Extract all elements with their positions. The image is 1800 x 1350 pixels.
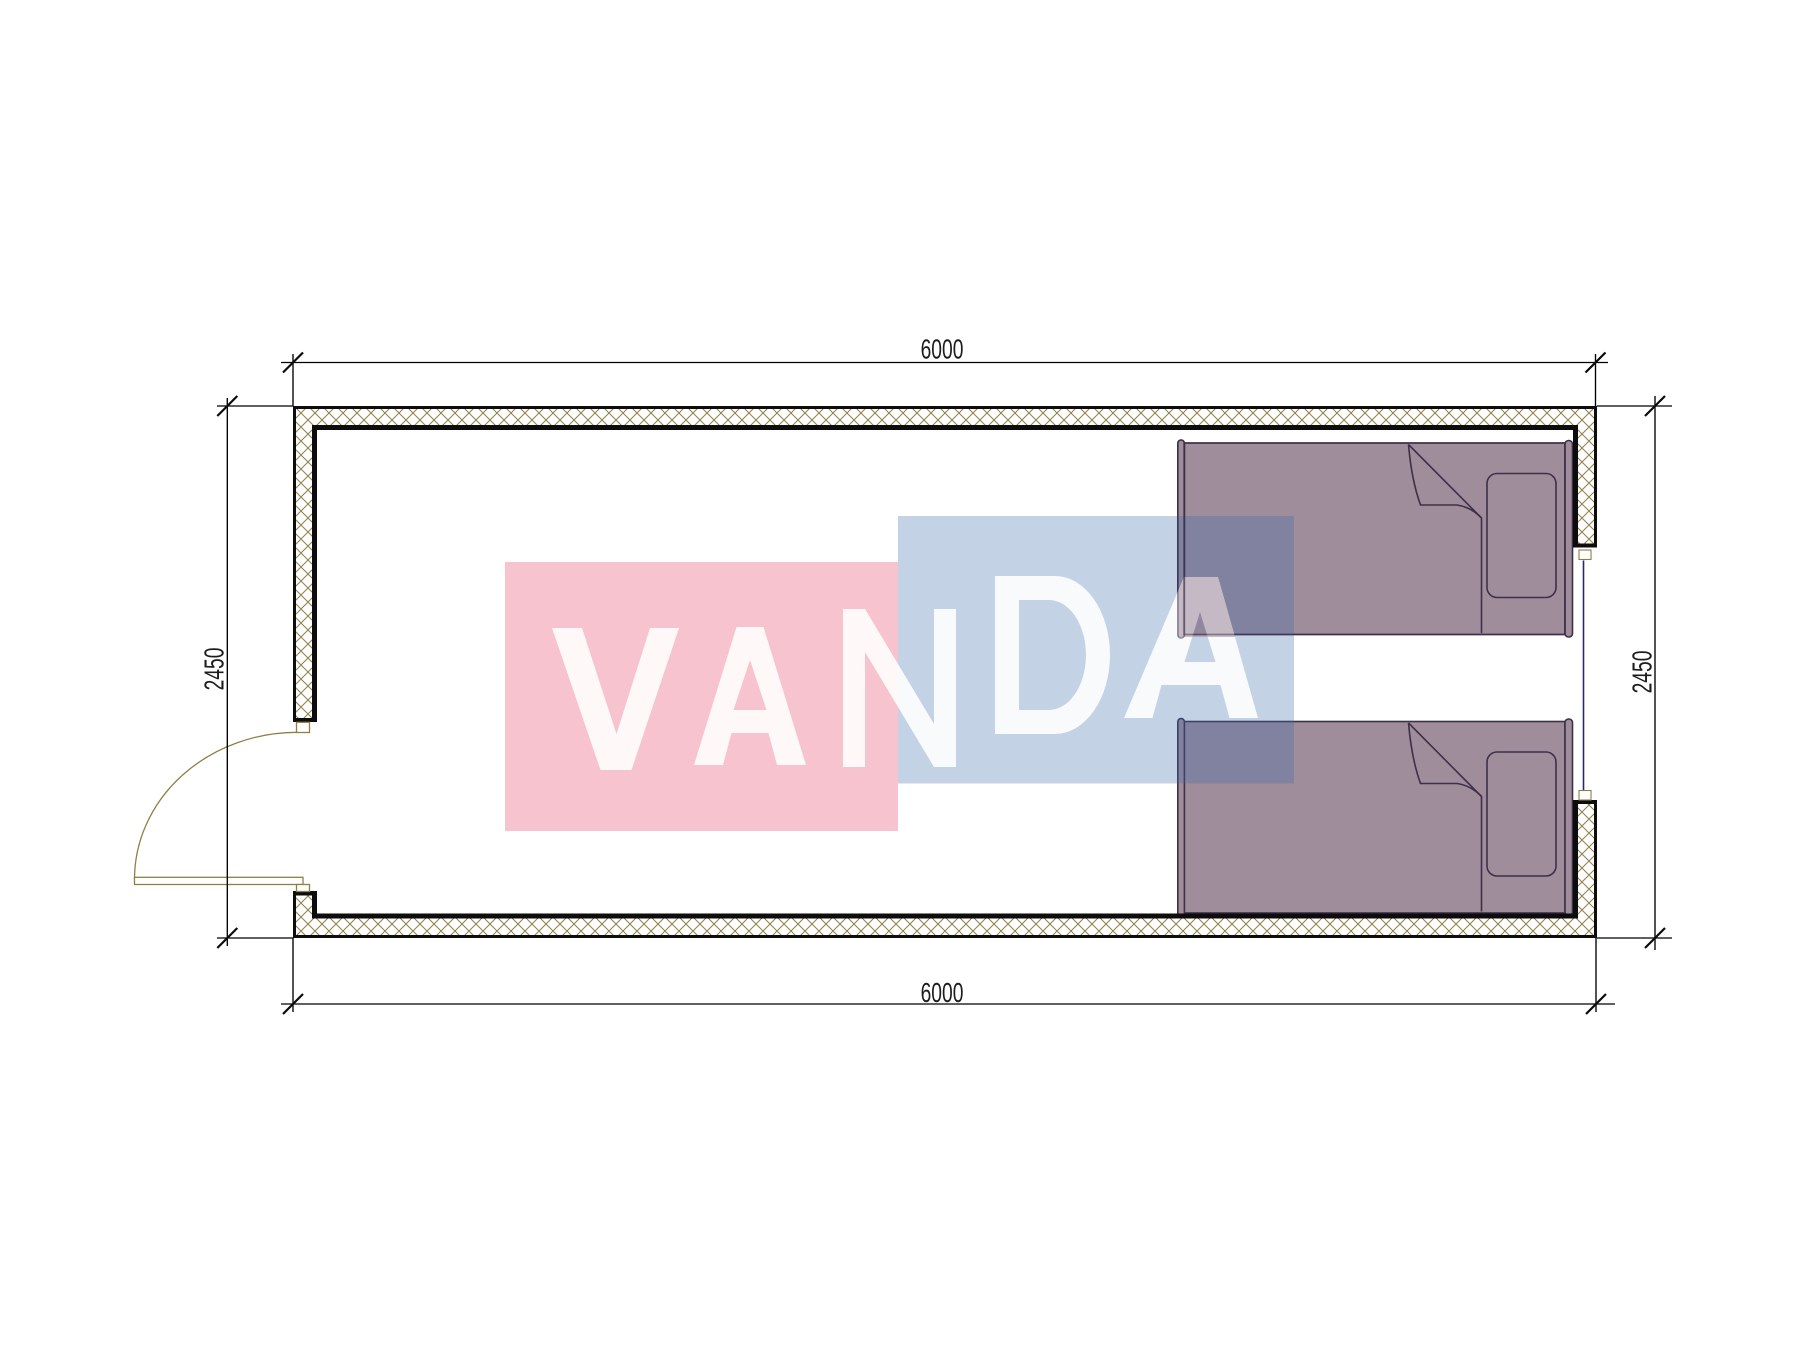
svg-text:6000: 6000 [921,979,964,1009]
svg-text:2450: 2450 [200,648,230,691]
svg-text:6000: 6000 [921,335,964,365]
svg-text:2450: 2450 [1628,651,1658,694]
